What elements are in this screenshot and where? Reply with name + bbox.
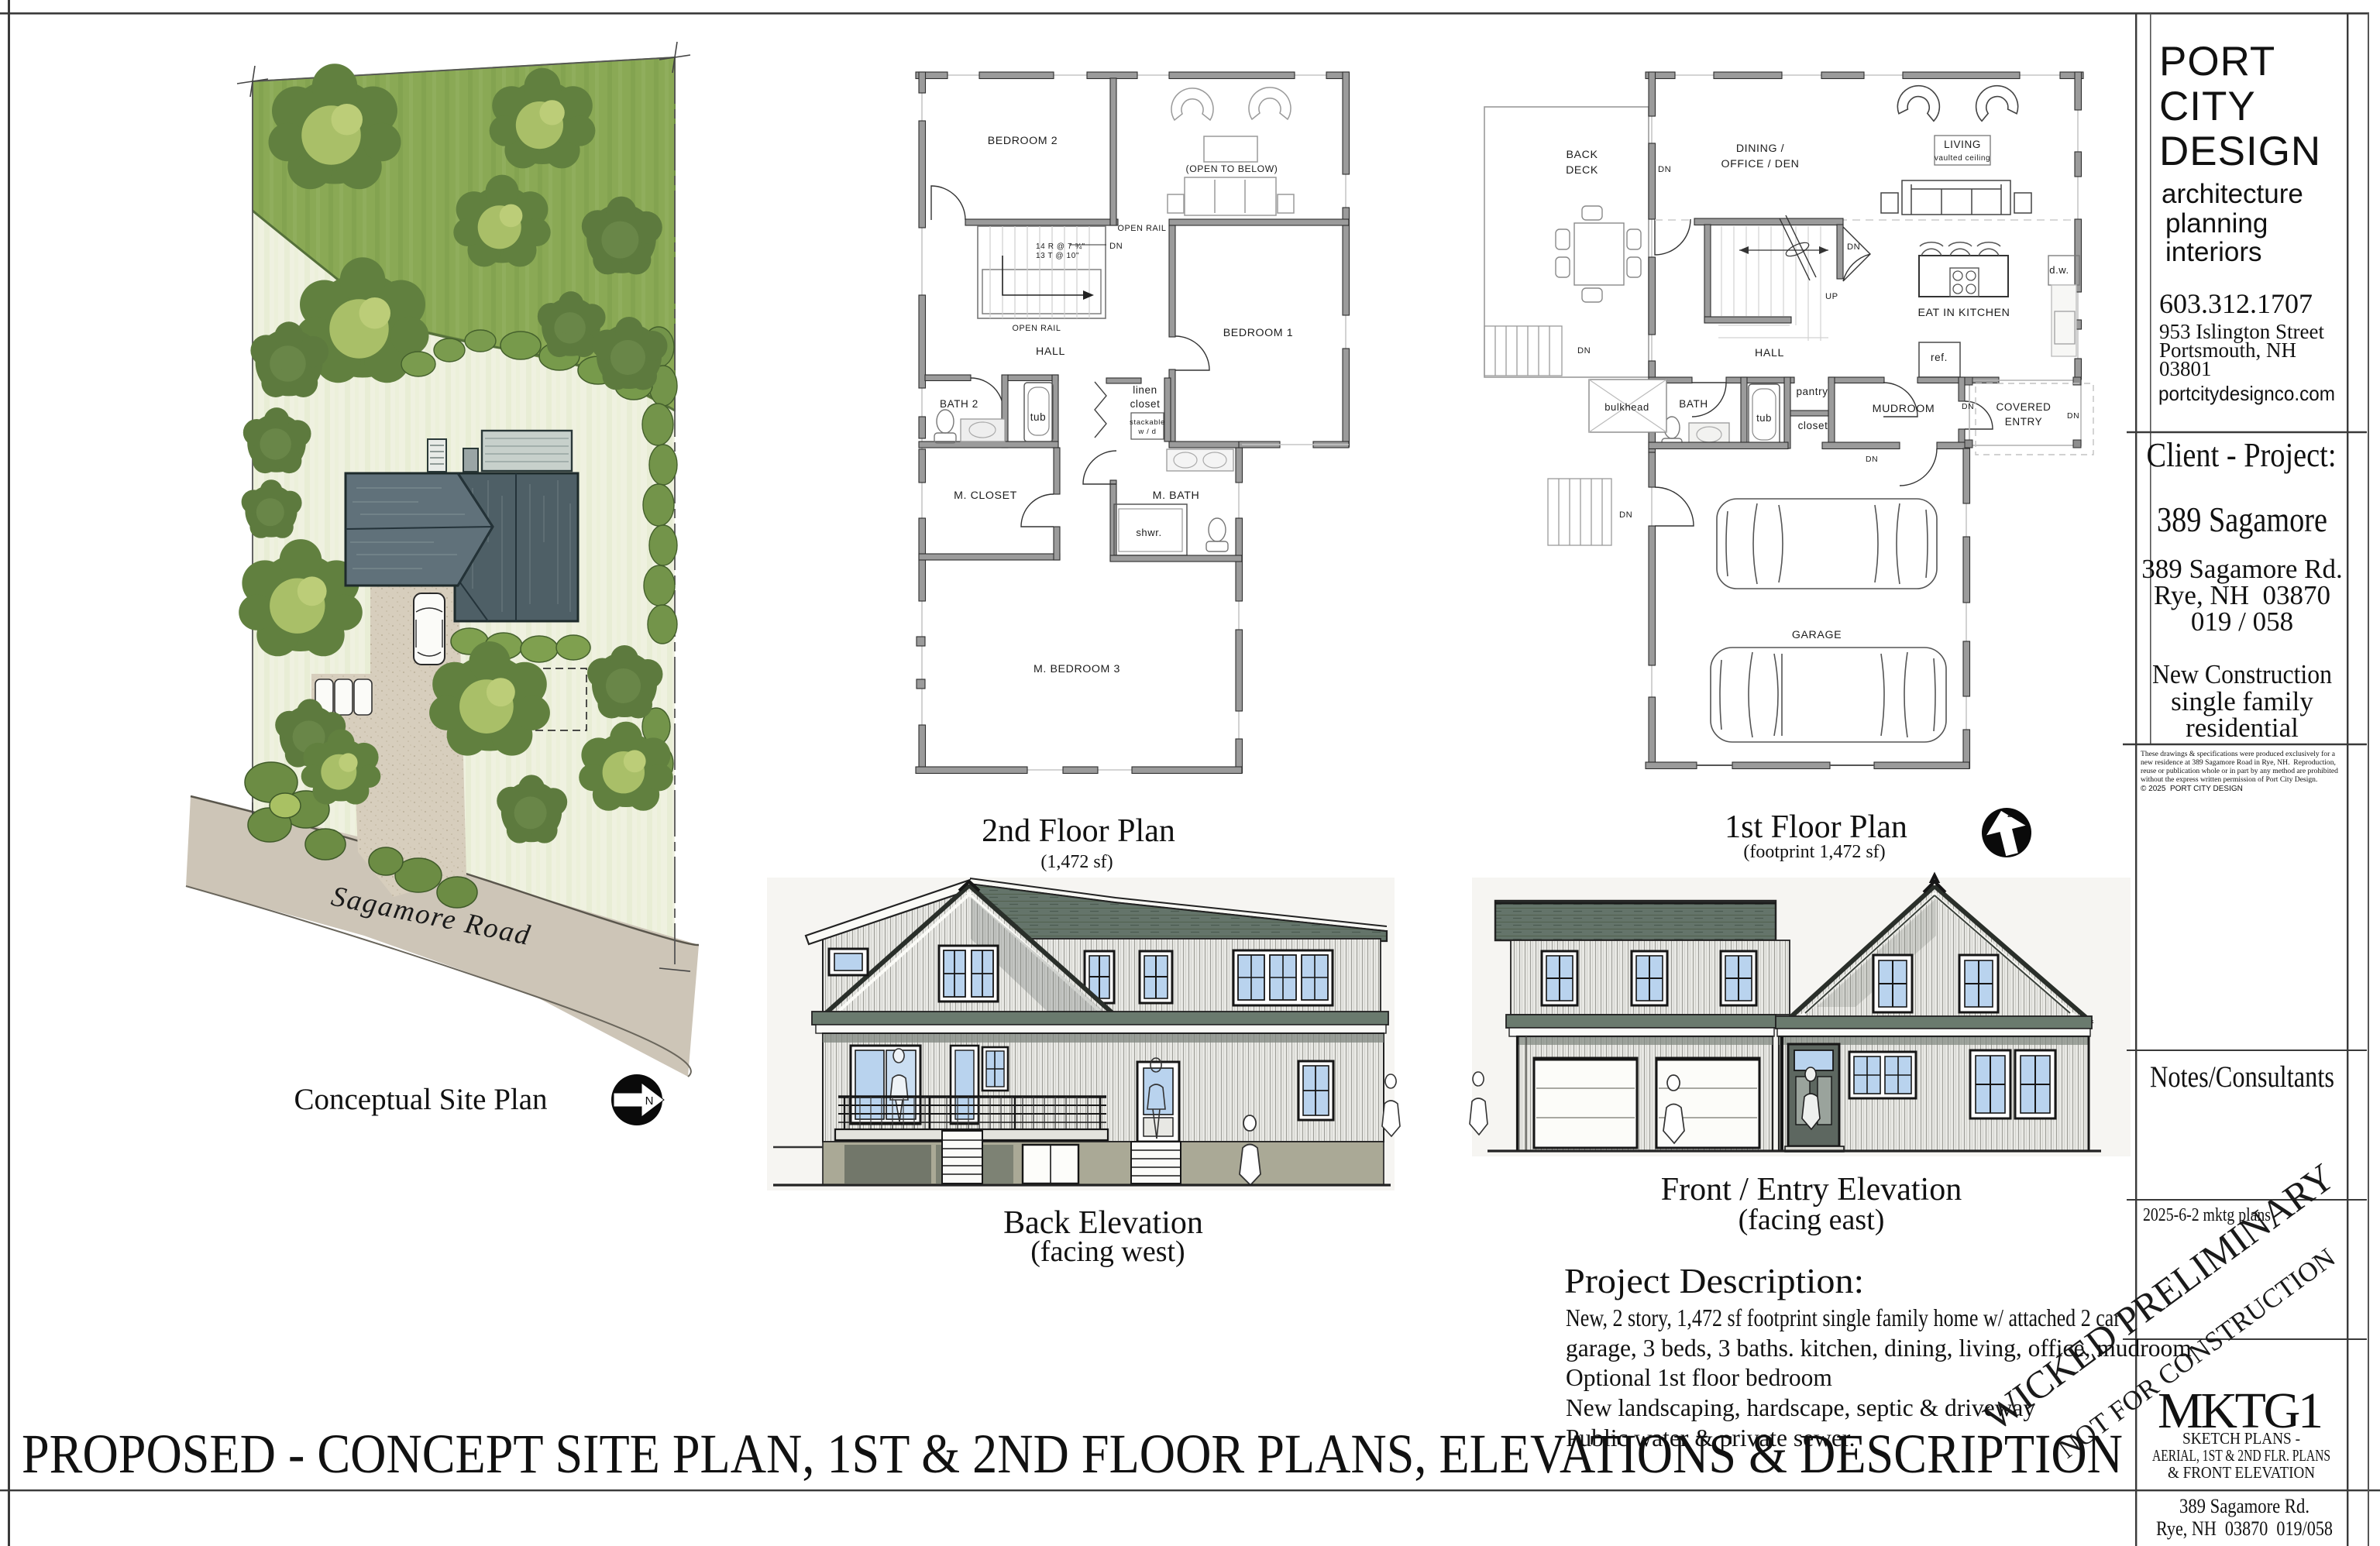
svg-text:1st Floor Plan: 1st Floor Plan: [1725, 809, 1907, 845]
svg-text:architecture: architecture: [2162, 179, 2303, 209]
svg-text:DN: DN: [1847, 242, 1860, 252]
svg-text:Optional 1st floor bedroom: Optional 1st floor bedroom: [1566, 1364, 1832, 1391]
svg-text:bulkhead: bulkhead: [1604, 401, 1649, 413]
svg-text:(1,472 sf): (1,472 sf): [1040, 852, 1113, 872]
svg-text:Front / Entry Elevation: Front / Entry Elevation: [1661, 1172, 1962, 1208]
svg-text:OFFICE / DEN: OFFICE / DEN: [1721, 158, 1800, 170]
svg-text:Project Description:: Project Description:: [1564, 1262, 1864, 1300]
svg-text:BEDROOM 1: BEDROOM 1: [1223, 327, 1294, 339]
svg-text:interiors: interiors: [2165, 237, 2261, 267]
svg-text:019 / 058: 019 / 058: [2191, 606, 2293, 637]
svg-text:DN: DN: [1866, 455, 1878, 464]
svg-text:DN: DN: [1577, 346, 1591, 356]
svg-text:new residence at 389 Sagamore: new residence at 389 Sagamore Road in Ry…: [2141, 758, 2336, 767]
svg-text:residential: residential: [2186, 713, 2299, 743]
svg-text:(facing east): (facing east): [1739, 1204, 1885, 1236]
svg-text:DN: DN: [1619, 510, 1632, 520]
svg-text:BATH: BATH: [1679, 398, 1708, 410]
svg-text:GARAGE: GARAGE: [1792, 629, 1842, 641]
svg-text:(OPEN TO BELOW): (OPEN TO BELOW): [1186, 163, 1278, 174]
svg-text:DINING /: DINING /: [1736, 143, 1784, 155]
svg-text:These drawings & specification: These drawings & specifications were pro…: [2141, 750, 2336, 758]
svg-text:CITY: CITY: [2159, 84, 2256, 129]
svg-text:& FRONT ELEVATION: & FRONT ELEVATION: [2168, 1463, 2315, 1482]
svg-text:shwr.: shwr.: [1136, 527, 1161, 538]
svg-text:14 R @ 7 ¾": 14 R @ 7 ¾": [1036, 242, 1085, 251]
svg-text:AERIAL, 1ST & 2ND FLR. PLANS: AERIAL, 1ST & 2ND FLR. PLANS: [2152, 1446, 2330, 1465]
svg-text:M. BEDROOM 3: M. BEDROOM 3: [1034, 663, 1120, 675]
svg-text:EAT IN KITCHEN: EAT IN KITCHEN: [1917, 307, 2010, 319]
svg-text:without the express written pe: without the express written permission o…: [2141, 775, 2317, 784]
svg-text:stackable: stackable: [1130, 418, 1165, 427]
svg-text:New, 2 story, 1,472 sf footpri: New, 2 story, 1,472 sf footprint single …: [1566, 1304, 2120, 1331]
svg-text:MUDROOM: MUDROOM: [1873, 403, 1935, 415]
svg-text:pantry: pantry: [1796, 386, 1828, 397]
svg-text:closet: closet: [1130, 398, 1161, 410]
svg-text:OPEN RAIL: OPEN RAIL: [1117, 224, 1166, 233]
svg-text:linen: linen: [1133, 384, 1157, 396]
svg-text:N: N: [645, 1094, 654, 1108]
svg-text:planning: planning: [2165, 208, 2268, 239]
svg-text:389 Sagamore Rd.: 389 Sagamore Rd.: [2179, 1495, 2309, 1517]
svg-text:DESIGN: DESIGN: [2159, 129, 2321, 174]
svg-text:Client - Project:: Client - Project:: [2147, 436, 2337, 474]
svg-text:M. BATH: M. BATH: [1153, 490, 1200, 502]
svg-text:DN: DN: [1109, 242, 1123, 251]
svg-text:Notes/Consultants: Notes/Consultants: [2150, 1060, 2334, 1094]
svg-text:reuse or publication whole or: reuse or publication whole or in part by…: [2141, 767, 2338, 775]
svg-text:portcitydesignco.com: portcitydesignco.com: [2158, 382, 2335, 405]
svg-text:HALL: HALL: [1755, 347, 1784, 359]
svg-text:vaulted ceiling: vaulted ceiling: [1935, 154, 1990, 163]
svg-text:DECK: DECK: [1566, 164, 1598, 177]
svg-text:DN: DN: [2067, 412, 2079, 421]
svg-text:New landscaping, hardscape, se: New landscaping, hardscape, septic & dri…: [1566, 1394, 2035, 1421]
svg-text:(footprint 1,472 sf): (footprint 1,472 sf): [1743, 842, 1885, 862]
svg-text:BATH 2: BATH 2: [940, 398, 978, 410]
svg-text:389 Sagamore: 389 Sagamore: [2157, 500, 2327, 539]
svg-text:2nd Floor Plan: 2nd Floor Plan: [982, 813, 1175, 849]
svg-text:BEDROOM 2: BEDROOM 2: [988, 135, 1058, 147]
svg-text:OPEN RAIL: OPEN RAIL: [1012, 324, 1061, 333]
svg-text:N: N: [2006, 810, 2017, 817]
svg-text:w / d: w / d: [1137, 428, 1156, 436]
svg-text:SKETCH PLANS -: SKETCH PLANS -: [2182, 1429, 2300, 1448]
svg-text:603.312.1707: 603.312.1707: [2159, 288, 2313, 319]
svg-text:HALL: HALL: [1036, 345, 1065, 358]
svg-text:© 2025 PORT CITY DESIGN: © 2025 PORT CITY DESIGN: [2141, 785, 2243, 793]
svg-text:Rye, NH 03870 019/058: Rye, NH 03870 019/058: [2156, 1517, 2333, 1540]
svg-text:tub: tub: [1756, 412, 1772, 424]
svg-text:New Construction: New Construction: [2152, 659, 2332, 689]
svg-text:COVERED: COVERED: [1997, 401, 2052, 413]
svg-text:closet: closet: [1798, 420, 1828, 431]
svg-text:DN: DN: [1658, 165, 1671, 174]
svg-text:LIVING: LIVING: [1944, 139, 1981, 150]
svg-text:UP: UP: [1825, 292, 1838, 301]
svg-text:DN: DN: [1962, 403, 1974, 411]
svg-text:PORT: PORT: [2159, 39, 2275, 84]
svg-text:(facing west): (facing west): [1030, 1235, 1185, 1268]
svg-text:tub: tub: [1030, 411, 1047, 423]
svg-text:garage, 3 beds, 3 baths. kitch: garage, 3 beds, 3 baths. kitchen, dining…: [1566, 1335, 2192, 1362]
svg-text:ENTRY: ENTRY: [2005, 416, 2043, 428]
svg-text:03801: 03801: [2159, 357, 2212, 380]
svg-text:13 T @ 10": 13 T @ 10": [1036, 252, 1079, 260]
svg-text:ref.: ref.: [1931, 352, 1948, 363]
svg-text:d.w.: d.w.: [2049, 264, 2069, 276]
svg-text:Conceptual Site Plan: Conceptual Site Plan: [294, 1083, 547, 1116]
svg-text:Public water & private sewer.: Public water & private sewer.: [1566, 1424, 1856, 1452]
svg-text:M. CLOSET: M. CLOSET: [954, 490, 1017, 502]
svg-text:BACK: BACK: [1566, 149, 1598, 161]
